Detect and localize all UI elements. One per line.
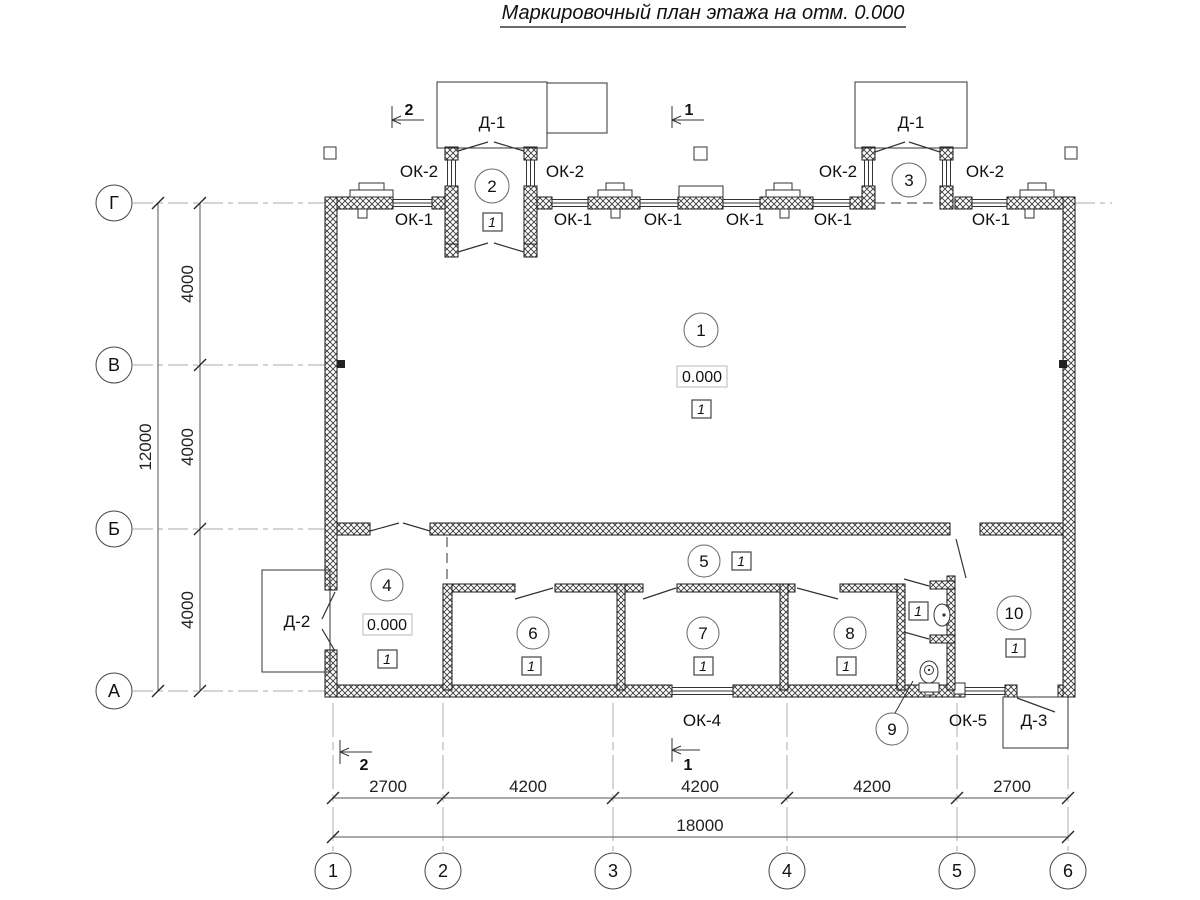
wall-segment	[980, 523, 1063, 535]
floor-mark: 1	[694, 657, 713, 675]
canopy-columns	[324, 147, 1077, 160]
floor-mark: 1	[732, 552, 751, 570]
dim-4000-top: 4000	[178, 265, 197, 303]
svg-text:9: 9	[887, 720, 896, 739]
window-ok1	[552, 200, 588, 207]
wall-segment	[447, 584, 515, 592]
door-room7-leaf	[643, 588, 676, 599]
wall-segment	[930, 635, 955, 643]
svg-text:1: 1	[684, 757, 693, 774]
dim-12000: 12000	[136, 423, 155, 470]
label-ok1: ОК-1	[814, 210, 852, 229]
floor-mark: 1	[483, 213, 502, 231]
room-tag-4: 4	[371, 569, 403, 601]
axis-bubble-4: 4	[769, 853, 805, 889]
room-tag-1: 1	[684, 313, 718, 347]
window-ok1	[972, 200, 1007, 207]
svg-text:1: 1	[685, 102, 694, 119]
svg-text:0.000: 0.000	[367, 617, 407, 634]
axis-bubble-g: Г	[96, 185, 132, 221]
wall-segment	[325, 650, 337, 697]
dim-4200-c: 4200	[853, 777, 891, 796]
floor-plan-page: Маркировочный план этажа на отм. 0.000 Г…	[0, 0, 1200, 900]
door-room10-leaf	[956, 539, 966, 578]
wall-segment	[897, 584, 905, 690]
svg-text:1: 1	[527, 658, 535, 674]
label-d3: Д-3	[1021, 711, 1048, 730]
floor-plan-drawing: Маркировочный план этажа на отм. 0.000 Г…	[0, 0, 1200, 900]
dimension-lines: 2700 4200 4200 4200 2700 18000 4000 4000…	[136, 197, 1074, 843]
room-tag-5: 5	[688, 545, 720, 577]
svg-text:5: 5	[699, 552, 708, 571]
dim-2700-left: 2700	[369, 777, 407, 796]
svg-text:1: 1	[488, 214, 496, 230]
svg-text:0.000: 0.000	[682, 369, 722, 386]
wall-segment	[760, 197, 813, 209]
wall-segment	[947, 576, 955, 690]
axis-label-v: В	[108, 355, 120, 375]
door-d1-right	[875, 142, 940, 152]
dim-4000-mid: 4000	[178, 428, 197, 466]
dim-2700-right: 2700	[993, 777, 1031, 796]
svg-text:3: 3	[904, 171, 913, 190]
window-ok1	[813, 200, 850, 207]
svg-text:1: 1	[737, 553, 745, 569]
wall-segment	[850, 197, 862, 209]
axis-label-g: Г	[109, 193, 119, 213]
door-room8-leaf	[797, 588, 838, 599]
window-ok5	[965, 688, 1005, 695]
wall-segment	[955, 197, 972, 209]
dim-4200-a: 4200	[509, 777, 547, 796]
axis-bubble-2: 2	[425, 853, 461, 889]
elevation-room4: 0.000	[363, 614, 412, 635]
svg-text:1: 1	[842, 658, 850, 674]
axis-label-1: 1	[328, 861, 338, 881]
sink	[934, 604, 950, 626]
wall-segment	[1063, 197, 1075, 697]
wall-segment	[555, 584, 643, 592]
section-mark-1-top: 1	[672, 102, 704, 128]
window-ok1	[393, 200, 432, 207]
window-ok1	[640, 200, 678, 207]
svg-text:7: 7	[698, 624, 707, 643]
label-ok1: ОК-1	[395, 210, 433, 229]
axis-label-2: 2	[438, 861, 448, 881]
svg-text:1: 1	[699, 658, 707, 674]
wall-segment	[432, 197, 445, 209]
floor-mark: 1	[837, 657, 856, 675]
label-ok2: ОК-2	[819, 162, 857, 181]
axis-marker-right	[1059, 360, 1067, 368]
label-d1: Д-1	[479, 113, 506, 132]
label-ok1: ОК-1	[726, 210, 764, 229]
dim-18000: 18000	[676, 816, 723, 835]
room-tag-10: 10	[997, 596, 1031, 630]
room-tag-8: 8	[834, 617, 866, 649]
label-ok1: ОК-1	[554, 210, 592, 229]
window-ok4	[672, 688, 733, 695]
svg-text:1: 1	[383, 651, 391, 667]
room-tag-2: 2	[475, 169, 509, 203]
wall-segment	[588, 197, 640, 209]
wall-segment	[1005, 685, 1017, 697]
svg-text:1: 1	[1011, 640, 1019, 656]
wall-segment	[337, 523, 370, 535]
label-ok5: ОК-5	[949, 711, 987, 730]
label-ok4: ОК-4	[683, 711, 721, 730]
section-mark-2-bottom: 2	[340, 740, 372, 774]
svg-text:4: 4	[382, 576, 391, 595]
axis-marker-left	[337, 360, 345, 368]
section-mark-2-top: 2	[392, 102, 424, 128]
label-ok2: ОК-2	[966, 162, 1004, 181]
floor-marks: 1 1 1 1 1 1 1 1 1	[378, 213, 1025, 675]
door-d2	[322, 592, 335, 651]
door-room6-leaf	[515, 588, 553, 599]
window-ok1	[723, 200, 760, 207]
elevation-marks: 0.000 0.000	[363, 366, 727, 635]
wall-segment	[678, 197, 723, 209]
door-d3-leaf	[1017, 698, 1055, 712]
svg-text:8: 8	[845, 624, 854, 643]
wall-segment	[325, 197, 337, 590]
wall-segment	[430, 523, 950, 535]
axis-bubble-a: А	[96, 673, 132, 709]
dim-4000-bottom: 4000	[178, 591, 197, 629]
svg-text:10: 10	[1005, 604, 1024, 623]
dim-4200-b: 4200	[681, 777, 719, 796]
label-ok1: ОК-1	[972, 210, 1010, 229]
exterior-walls	[324, 147, 1077, 697]
axis-bubble-1: 1	[315, 853, 351, 889]
wall-segment	[780, 584, 788, 690]
section-mark-1-bottom: 1	[672, 738, 700, 774]
svg-text:1: 1	[914, 603, 922, 619]
svg-text:6: 6	[528, 624, 537, 643]
axis-bubble-3: 3	[595, 853, 631, 889]
svg-text:2: 2	[487, 177, 496, 196]
axis-label-4: 4	[782, 861, 792, 881]
wall-segment	[677, 584, 795, 592]
wall-segment	[930, 581, 955, 589]
page-title: Маркировочный план этажа на отм. 0.000	[502, 2, 905, 24]
axis-label-5: 5	[952, 861, 962, 881]
label-d1: Д-1	[898, 113, 925, 132]
axis-label-b: Б	[108, 519, 120, 539]
svg-text:1: 1	[696, 321, 705, 340]
axis-bubble-b: Б	[96, 511, 132, 547]
axis-bubble-5: 5	[939, 853, 975, 889]
wall-segment	[443, 584, 452, 690]
wall-segment	[840, 584, 905, 592]
floor-mark: 1	[909, 602, 928, 620]
toilet	[919, 661, 939, 695]
floor-mark: 1	[378, 650, 397, 668]
label-ok2: ОК-2	[400, 162, 438, 181]
wall-segment	[617, 584, 625, 690]
canopy-left-side	[547, 83, 607, 133]
title-block: Маркировочный план этажа на отм. 0.000	[500, 2, 906, 27]
elevation-room1: 0.000	[677, 366, 727, 387]
label-ok2: ОК-2	[546, 162, 584, 181]
label-ok1: ОК-1	[644, 210, 682, 229]
floor-mark: 1	[522, 657, 541, 675]
label-d2: Д-2	[284, 612, 311, 631]
room-tag-3: 3	[892, 163, 926, 197]
axis-bubble-6: 6	[1050, 853, 1086, 889]
axis-bubble-v: В	[96, 347, 132, 383]
room-tag-6: 6	[517, 617, 549, 649]
axis-label-a: А	[108, 681, 120, 701]
svg-text:2: 2	[405, 102, 414, 119]
door-corridor-double	[370, 523, 430, 531]
floor-mark: 1	[1006, 639, 1025, 657]
room-tag-7: 7	[687, 617, 719, 649]
floor-mark: 1	[692, 400, 711, 418]
axis-label-3: 3	[608, 861, 618, 881]
wall-segment	[537, 197, 552, 209]
svg-text:2: 2	[360, 757, 369, 774]
grid-axes: Г В Б А 1 2 3 4	[96, 185, 1112, 889]
door-wc-lower-leaf	[904, 632, 929, 639]
door-wc-upper-leaf	[904, 579, 929, 586]
axis-label-6: 6	[1063, 861, 1073, 881]
svg-text:1: 1	[697, 401, 705, 417]
